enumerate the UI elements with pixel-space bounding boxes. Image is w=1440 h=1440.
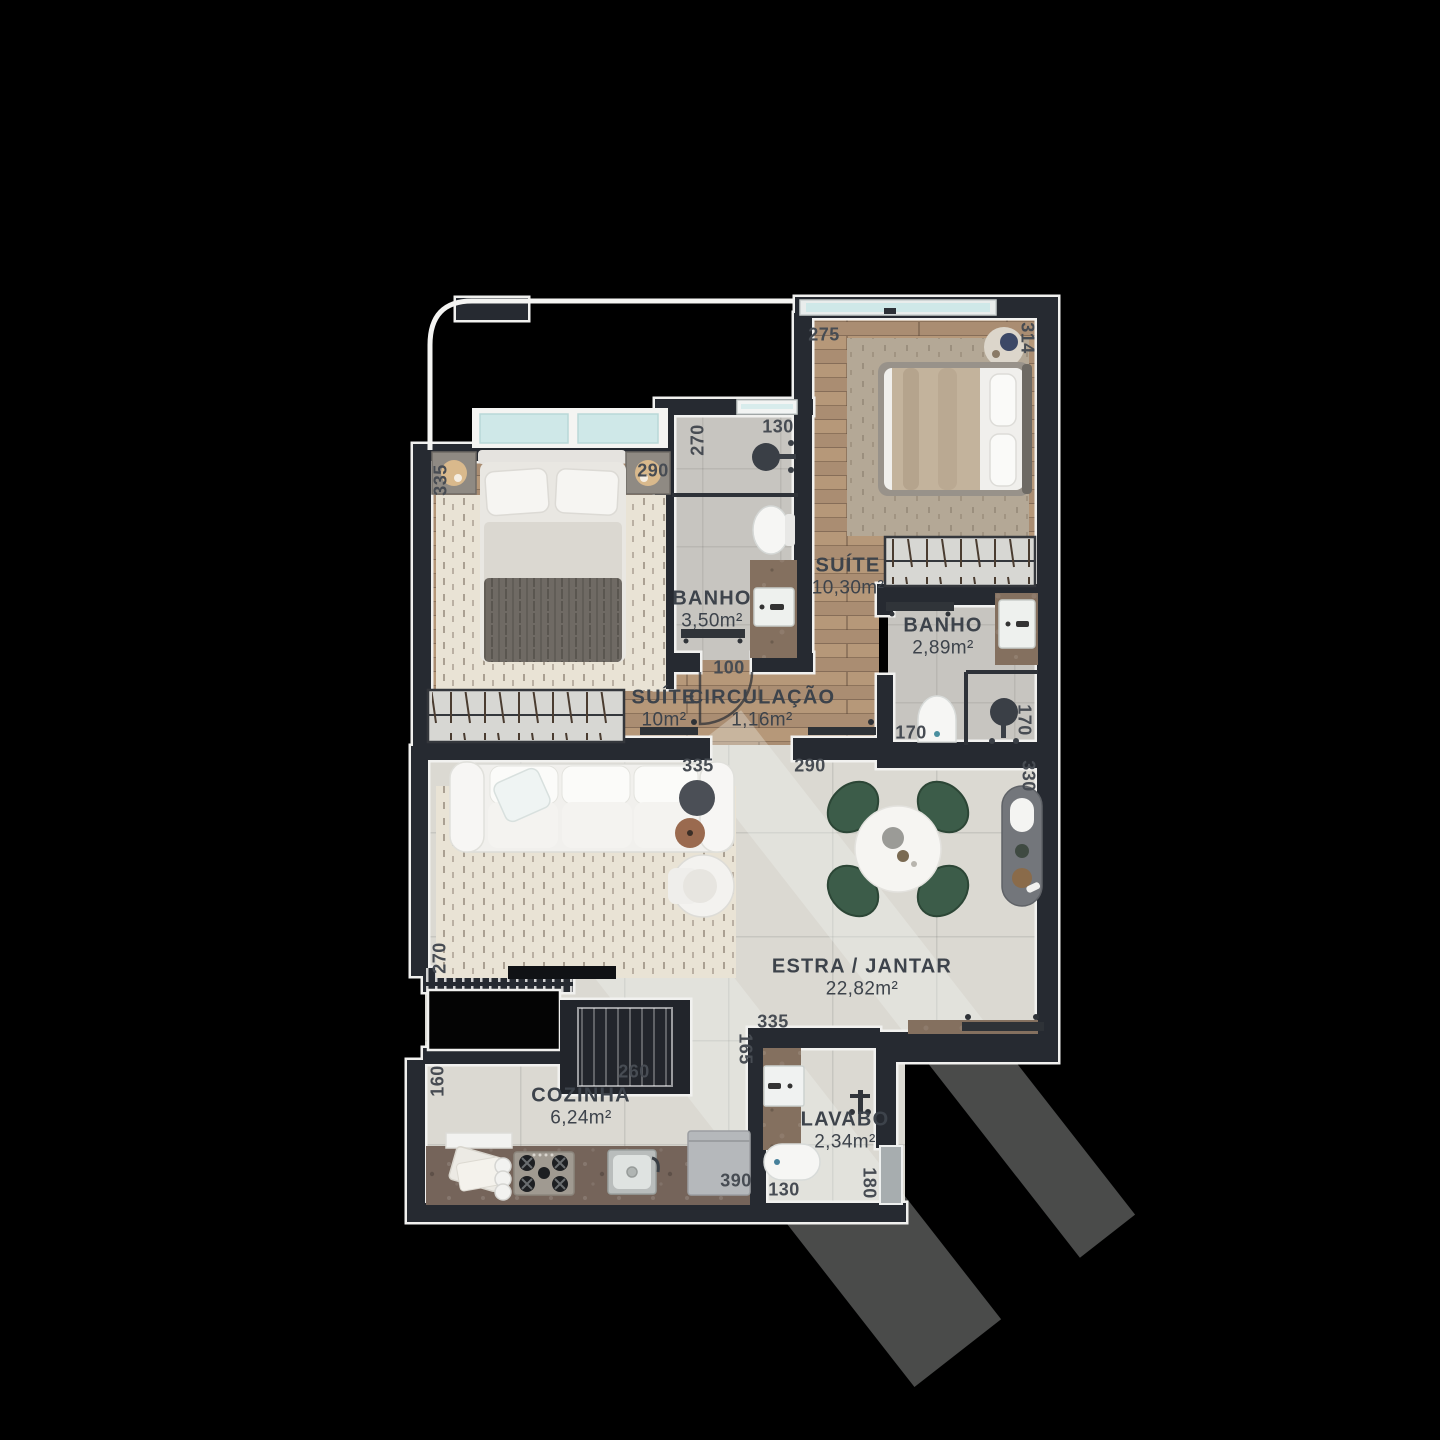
pillow	[485, 468, 550, 516]
fridge	[688, 1131, 750, 1195]
pillow	[990, 374, 1016, 426]
stove	[514, 1152, 574, 1195]
wall-shelf	[640, 727, 698, 735]
washbasin	[999, 600, 1035, 648]
nightstand	[432, 452, 476, 494]
pillow	[990, 434, 1016, 486]
wall-shelf	[446, 1133, 512, 1148]
plate	[495, 1184, 511, 1200]
wardrobe	[885, 537, 1035, 586]
window	[578, 414, 658, 443]
wardrobe	[428, 690, 624, 742]
floor-plan-canvas: SUÍTE 10,30m² BANHO 3,50m² SUÍTE 10m² CI…	[0, 0, 1440, 1440]
towel-bench	[886, 602, 954, 611]
double-bed	[480, 462, 626, 662]
wall-shelf	[808, 727, 876, 735]
void	[428, 990, 560, 1050]
kitchen-sink	[608, 1150, 658, 1194]
banho-1-window	[737, 400, 797, 414]
vinyl-record	[1000, 333, 1018, 351]
tv	[508, 966, 616, 979]
table-lamp	[441, 460, 467, 486]
blanket	[484, 578, 622, 662]
suite-1-windows	[472, 408, 668, 448]
double-bed	[878, 362, 1032, 496]
floor-plan-svg	[0, 0, 1440, 1440]
toilet	[764, 1144, 820, 1180]
sliding-glass-door	[800, 300, 996, 315]
washbasin	[764, 1066, 804, 1106]
washbasin	[754, 588, 794, 626]
glass-partition	[672, 493, 798, 497]
pillow	[555, 468, 619, 515]
headboard	[478, 450, 626, 464]
side-table	[679, 780, 715, 816]
nightstand	[626, 452, 670, 494]
window	[480, 414, 568, 443]
headboard	[1022, 364, 1032, 494]
table-lamp	[635, 460, 661, 486]
toilet	[918, 696, 956, 742]
shaft	[560, 1000, 690, 1094]
door	[880, 1146, 902, 1204]
sideboard	[1002, 786, 1042, 906]
